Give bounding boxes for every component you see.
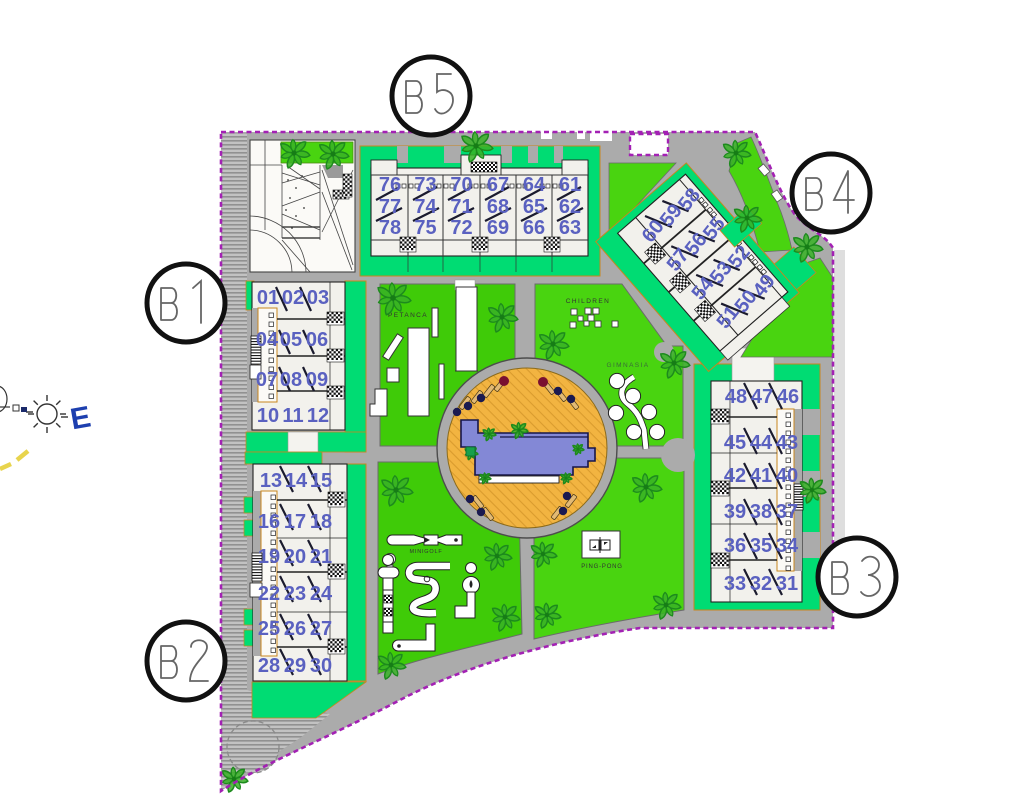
svg-text:21: 21 [310,546,332,568]
svg-text:11: 11 [282,405,303,427]
svg-text:75: 75 [414,217,436,239]
svg-text:73: 73 [414,174,436,196]
svg-text:15: 15 [310,470,332,492]
svg-text:77: 77 [379,196,401,218]
svg-text:41: 41 [750,465,772,487]
svg-text:09: 09 [306,369,328,391]
svg-text:24: 24 [310,583,333,605]
svg-text:65: 65 [523,196,545,218]
svg-text:04: 04 [256,329,279,351]
svg-text:62: 62 [559,196,581,218]
svg-text:47: 47 [751,386,773,408]
svg-text:MINIGOLF: MINIGOLF [410,549,443,555]
svg-text:02: 02 [282,287,304,309]
svg-text:78: 78 [379,217,401,239]
svg-text:19: 19 [258,546,280,568]
svg-text:44: 44 [750,432,773,454]
svg-text:01: 01 [257,287,279,309]
svg-text:26: 26 [284,618,306,640]
svg-text:67: 67 [487,174,509,196]
svg-text:72: 72 [450,217,472,239]
svg-text:14: 14 [285,470,308,492]
svg-text:10: 10 [257,405,279,427]
svg-text:48: 48 [725,386,747,408]
svg-text:CHILDREN: CHILDREN [566,298,610,305]
svg-text:74: 74 [414,196,437,218]
svg-text:39: 39 [724,501,746,523]
svg-text:12: 12 [307,405,329,427]
svg-text:46: 46 [777,386,799,408]
svg-text:28: 28 [258,655,280,677]
svg-text:08: 08 [280,369,302,391]
svg-text:25: 25 [258,618,280,640]
svg-text:37: 37 [776,501,798,523]
svg-text:18: 18 [310,511,332,533]
svg-text:23: 23 [284,583,306,605]
svg-text:63: 63 [559,217,581,239]
svg-text:PETANCA: PETANCA [388,312,428,319]
svg-text:PING-PONG: PING-PONG [581,564,623,570]
svg-text:43: 43 [776,432,798,454]
svg-text:34: 34 [776,535,799,557]
svg-text:33: 33 [724,573,746,595]
svg-text:16: 16 [258,511,280,533]
svg-text:22: 22 [258,583,280,605]
svg-text:76: 76 [379,174,401,196]
svg-text:66: 66 [523,217,545,239]
svg-text:03: 03 [307,287,329,309]
svg-text:30: 30 [310,655,332,677]
svg-text:32: 32 [750,573,772,595]
svg-text:71: 71 [450,196,472,218]
svg-text:45: 45 [724,432,746,454]
svg-text:35: 35 [750,535,772,557]
svg-text:GIMNASIA: GIMNASIA [607,362,650,369]
svg-text:27: 27 [310,618,332,640]
svg-text:36: 36 [724,535,746,557]
svg-text:40: 40 [776,465,798,487]
svg-text:31: 31 [776,573,798,595]
svg-text:70: 70 [450,174,472,196]
svg-text:68: 68 [487,196,509,218]
svg-text:07: 07 [256,369,278,391]
svg-text:64: 64 [523,174,546,196]
svg-text:06: 06 [306,329,328,351]
svg-text:61: 61 [559,174,581,196]
svg-text:29: 29 [284,655,306,677]
svg-text:17: 17 [284,511,306,533]
svg-text:13: 13 [260,470,282,492]
svg-text:20: 20 [284,546,306,568]
svg-text:69: 69 [487,217,509,239]
svg-text:05: 05 [280,329,302,351]
svg-text:42: 42 [724,465,746,487]
svg-text:38: 38 [750,501,772,523]
